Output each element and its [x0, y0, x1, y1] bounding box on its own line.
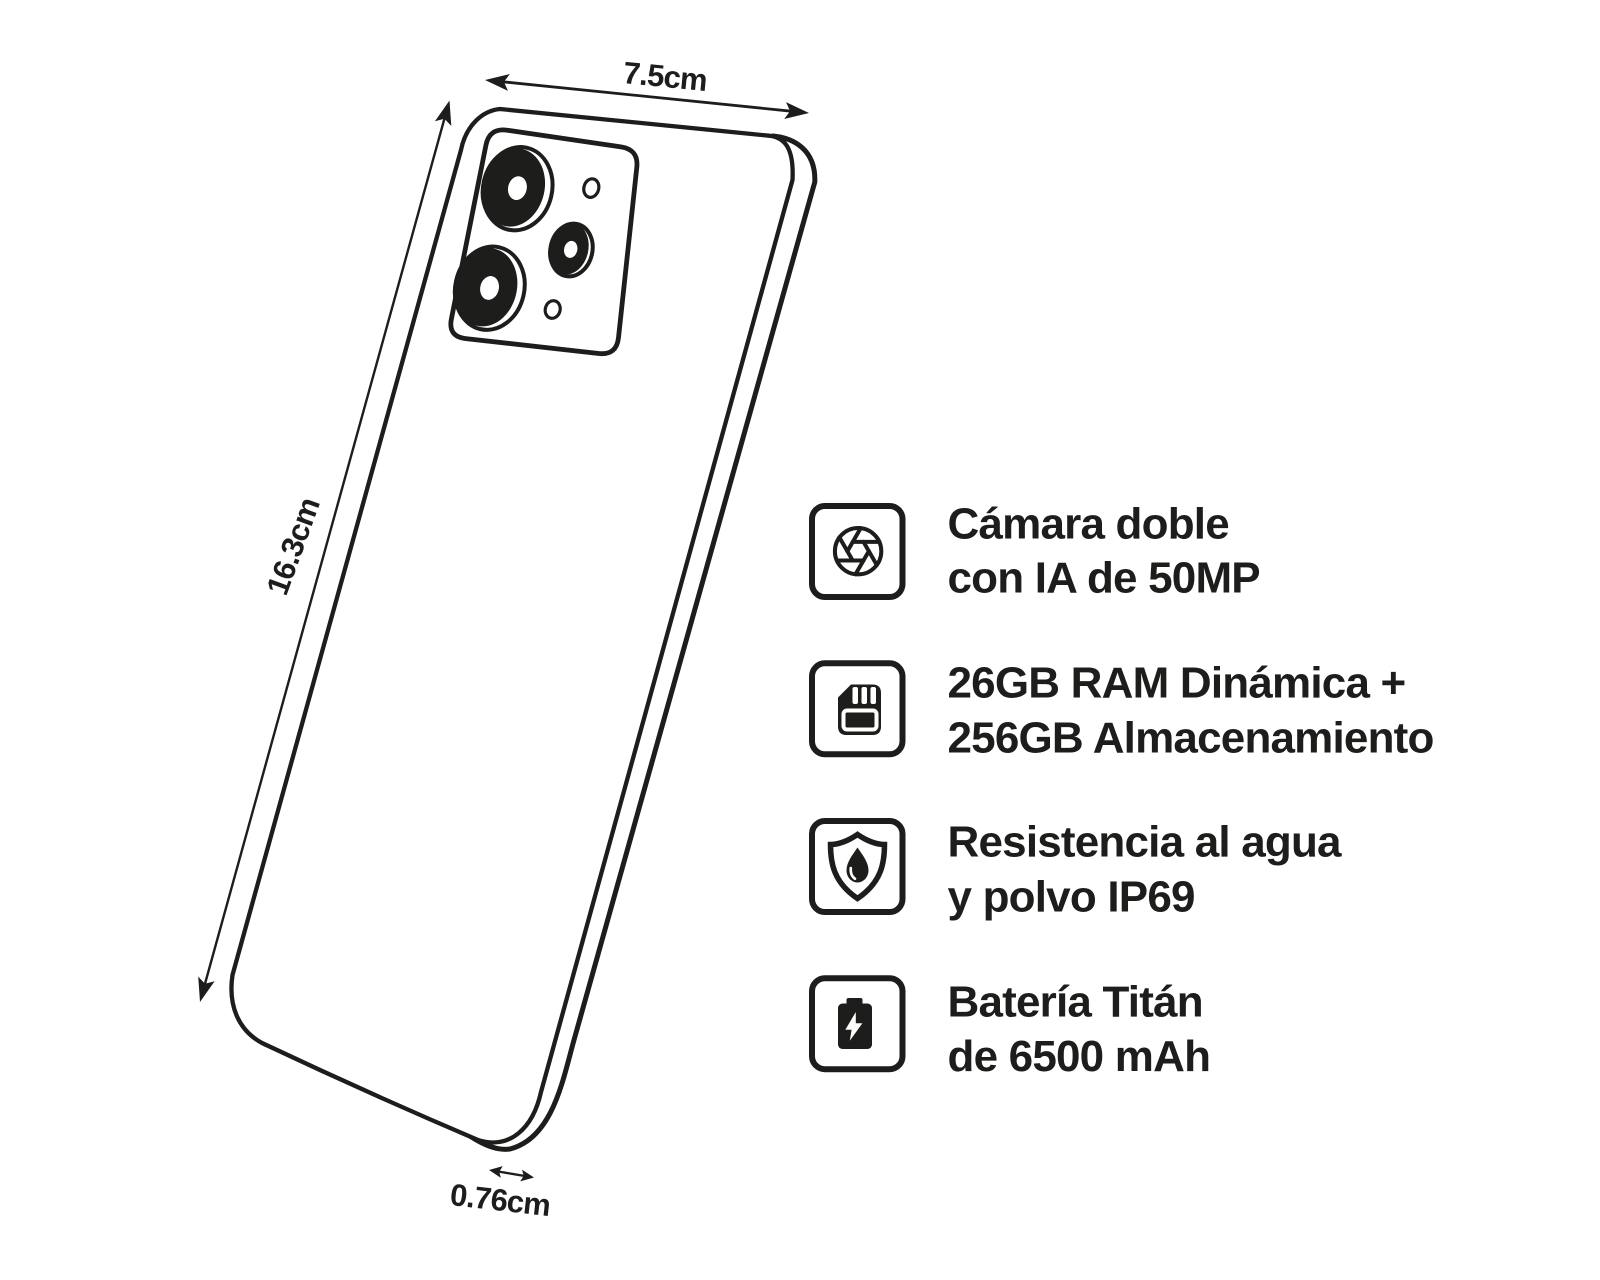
svg-text:Batería Titán: Batería Titán — [948, 978, 1203, 1027]
svg-text:y polvo IP69: y polvo IP69 — [948, 873, 1195, 922]
svg-text:de 6500 mAh: de 6500 mAh — [948, 1032, 1211, 1081]
svg-text:Resistencia al agua: Resistencia al agua — [948, 818, 1343, 867]
svg-text:256GB Almacenamiento: 256GB Almacenamiento — [948, 714, 1434, 763]
svg-text:26GB RAM Dinámica +: 26GB RAM Dinámica + — [948, 659, 1406, 708]
svg-text:con IA de 50MP: con IA de 50MP — [948, 554, 1260, 603]
svg-text:Cámara doble: Cámara doble — [948, 500, 1229, 549]
